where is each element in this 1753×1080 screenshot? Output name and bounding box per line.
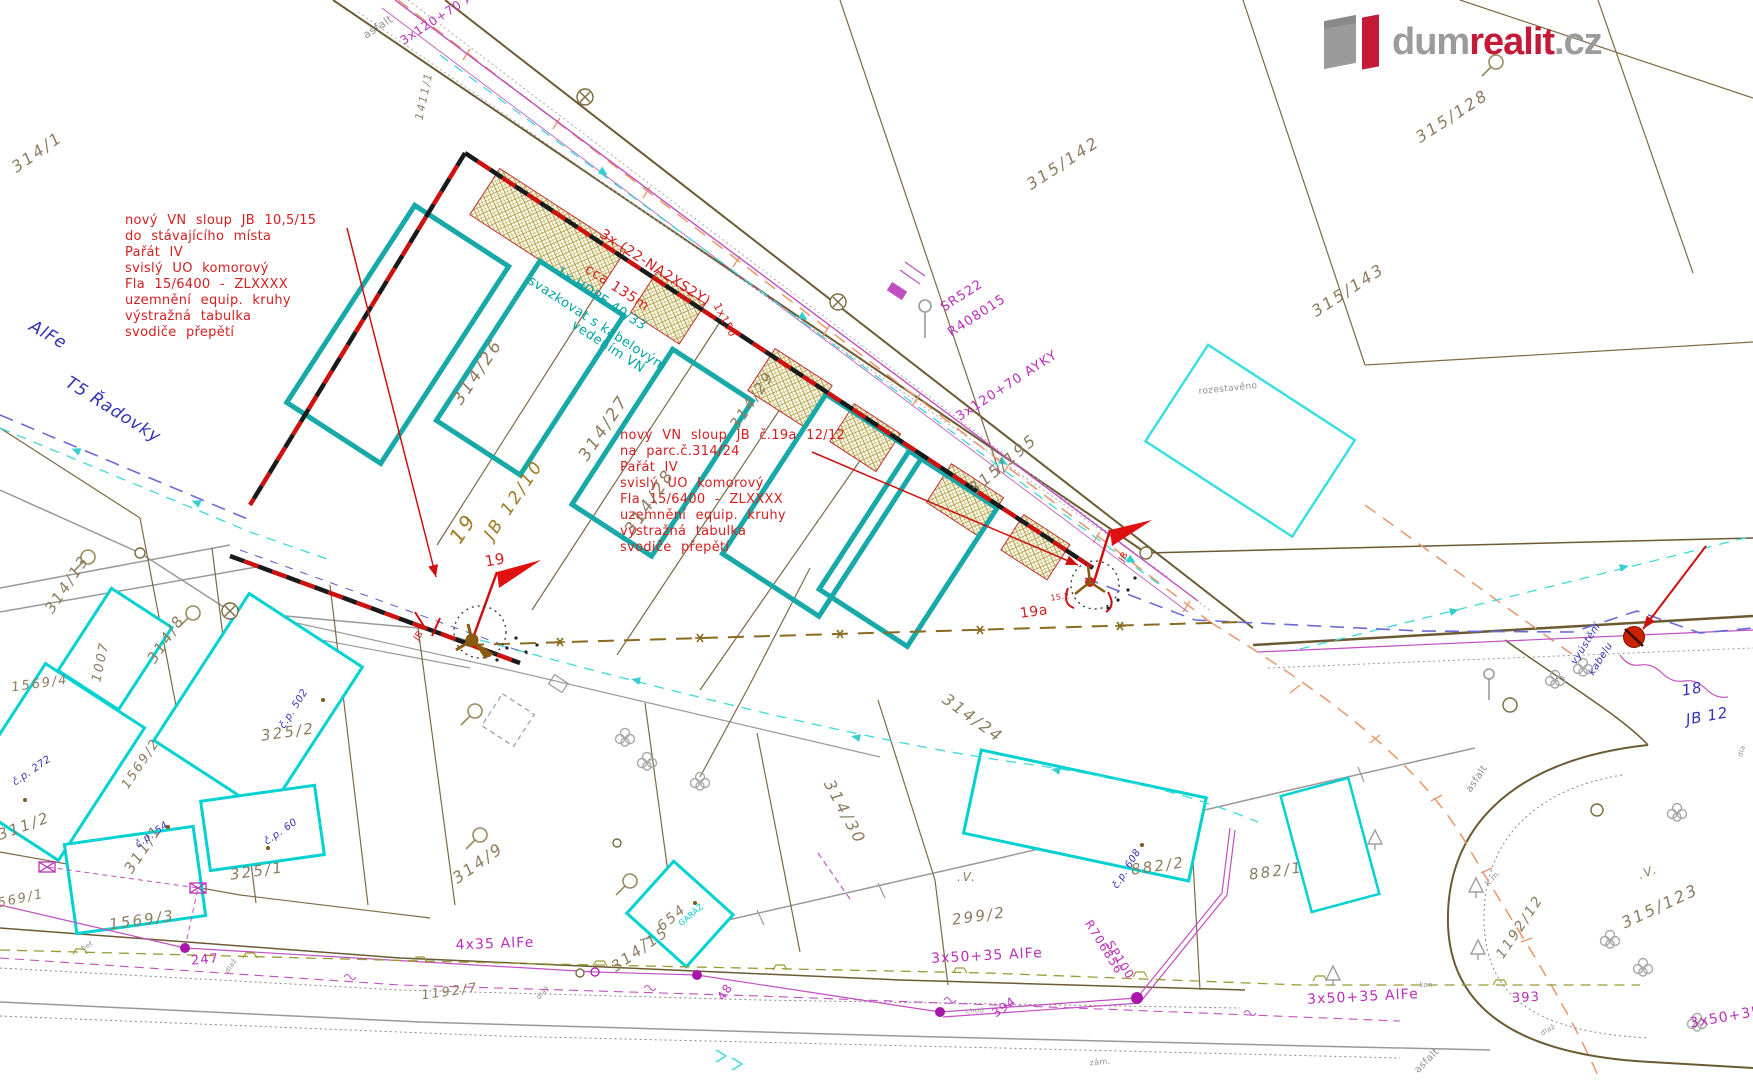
cadastral-map-page: { "colors":{"brand_red":"#c41937","logo_… [0, 0, 1753, 1080]
dumrealit-wordmark: dumrealit.cz [1392, 12, 1602, 72]
logo-tld: .cz [1554, 21, 1602, 63]
note-new-pole-19a: nový VN sloup JB č.19a 12/12 na parc.č.3… [620, 428, 845, 556]
pole-19a-icon [1075, 566, 1105, 594]
note-line: výstražná tabulka [125, 309, 316, 325]
note-line: svislý UO komorový [620, 476, 845, 492]
utility-layer [0, 0, 1753, 1080]
note-line: uzemnění equip. kruhy [125, 293, 316, 309]
note-line: do stávajícího místa [125, 229, 316, 245]
note-line: na parc.č.314/24 [620, 444, 845, 460]
map-canvas [0, 0, 1753, 1080]
flag-19-icon [473, 560, 541, 638]
note-line: svodiče přepětí [125, 325, 316, 341]
note-line: výstražná tabulka [620, 524, 845, 540]
dumrealit-building-icon [1322, 12, 1382, 72]
note-line: Pařát IV [620, 460, 845, 476]
signpost-icons [919, 300, 1494, 700]
note-line: nový VN sloup JB č.19a 12/12 [620, 428, 845, 444]
logo-dum: dum [1392, 21, 1469, 63]
dumrealit-logo[interactable]: dumrealit.cz [1322, 12, 1602, 72]
note-line: svodiče přepětí [620, 540, 845, 556]
note-line: nový VN sloup JB 10,5/15 [125, 213, 316, 229]
note-line: Fla 15/6400 - ZLXXXX [620, 492, 845, 508]
note-line: svislý UO komorový [125, 261, 316, 277]
road-layer [0, 0, 1753, 1068]
note-line: uzemnění equip. kruhy [620, 508, 845, 524]
note-line: Fla 15/6400 - ZLXXXX [125, 277, 316, 293]
note-line: Pařát IV [125, 245, 316, 261]
note-new-pole-19: nový VN sloup JB 10,5/15 do stávajícího … [125, 213, 316, 341]
logo-realit: realit [1469, 21, 1554, 63]
